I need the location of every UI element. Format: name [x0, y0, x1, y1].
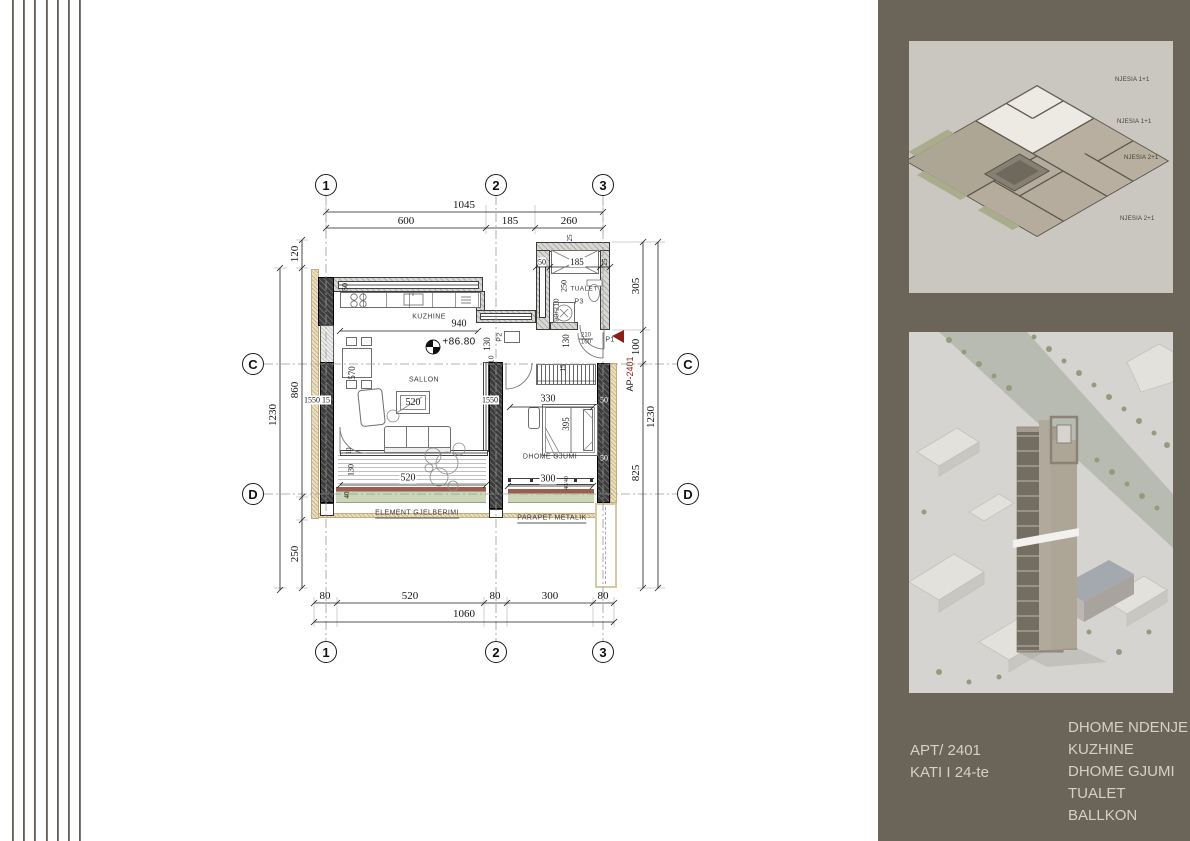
tower-drawing	[909, 332, 1173, 693]
grid-bubble-D-right: D	[677, 483, 699, 505]
apartment-tag-number: 2401	[625, 356, 635, 376]
wall-wc-bottom	[550, 322, 578, 330]
wall-extension-centerline	[605, 507, 606, 584]
door-tag-p3: P3	[574, 299, 583, 306]
insulation-right	[610, 363, 617, 503]
room-list-item: DHOME GJUMI	[1068, 761, 1188, 783]
note-greenery: ELEMENT GJELBERIMI	[375, 510, 459, 519]
note-parapet: PARAPET METALIK	[517, 515, 586, 524]
dim-right-a: 305	[630, 278, 642, 295]
presentation-sheet: 520	[0, 0, 1190, 841]
door-size-p2: 90/210	[489, 355, 496, 379]
window-kitchen	[338, 281, 479, 289]
dim-wc-25a: 25	[601, 259, 609, 266]
dim-wc-185: 185	[569, 257, 585, 267]
dim-top-total: 1045	[453, 199, 475, 211]
dim-bot-e: 80	[598, 590, 609, 602]
wall-left	[320, 362, 334, 503]
room-label-kitchen: KUZHINE	[412, 314, 446, 321]
dim-top-c: 260	[561, 215, 578, 227]
grid-label: 1	[322, 645, 329, 660]
dim-bot-b: 520	[402, 590, 419, 602]
apartment-number: APT/ 2401	[910, 740, 989, 762]
side-panel: NJESIA 1+1 NJESIA 1+1 NJESIA 2+1 NJESIA …	[878, 0, 1190, 841]
dim-dining: 570	[347, 366, 357, 380]
grid-label: 3	[599, 178, 606, 193]
grid-label: 1	[322, 178, 329, 193]
column-top-left	[318, 277, 334, 326]
grid-bubble-1-bottom: 1	[315, 641, 337, 663]
dim-top-b: 185	[502, 215, 519, 227]
room-list-item: DHOME NDENJE	[1068, 717, 1188, 739]
dining-chair	[346, 380, 357, 389]
dim-top-a: 600	[398, 215, 415, 227]
dim-bot-a: 80	[320, 590, 331, 602]
grid-label: D	[248, 487, 257, 502]
dim-right-c: 825	[630, 465, 642, 482]
decor-line	[34, 0, 36, 841]
room-label-living: SALLON	[409, 377, 439, 384]
door-size-p1: 210 100	[579, 333, 593, 346]
wall-left-cap	[320, 503, 334, 516]
door-size-p1-bottom: 100	[579, 340, 593, 346]
dim-kitchen-width: 940	[452, 319, 467, 330]
grid-bubble-D-left: D	[242, 483, 264, 505]
dim-right-b: 100	[630, 339, 642, 356]
apartment-tag: AP-2401	[625, 356, 635, 391]
greenery-strip-right	[508, 493, 594, 503]
dim-bed-width: 330	[541, 394, 556, 405]
room-label-bedroom: DHOME GJUMI	[523, 454, 577, 461]
dim-wall-50b: 50	[600, 454, 608, 463]
dining-chair	[361, 337, 372, 346]
apartment-title-block: APT/ 2401 KATI I 24-te	[910, 740, 989, 784]
grid-label: 3	[599, 645, 606, 660]
door-tag-p2: P2	[497, 332, 504, 341]
room-list-item: BALLKON	[1068, 805, 1188, 827]
dim-wall-50a: 50	[600, 396, 608, 405]
decor-line	[23, 0, 25, 841]
dim-window-mid: 1550	[481, 396, 499, 405]
door-tag-p1: P1	[605, 337, 614, 344]
grid-bubble-2-bottom: 2	[485, 641, 507, 663]
tower-render-image	[909, 332, 1173, 693]
dim-counter: 50	[341, 283, 350, 291]
dim-130a: 130	[482, 337, 492, 351]
grid-label: 2	[492, 178, 499, 193]
grid-label: D	[683, 487, 692, 502]
shaft-wc	[539, 258, 546, 318]
entry-cabinet	[504, 331, 520, 343]
dim-bot-d: 300	[542, 590, 559, 602]
grid-label: 2	[492, 645, 499, 660]
dim-wc-25b: 25	[566, 235, 574, 242]
grid-bubble-3-top: 3	[592, 174, 614, 196]
room-list-item: TUALET	[1068, 783, 1188, 805]
decor-line	[12, 0, 14, 841]
dim-balcony-right: 300	[540, 474, 557, 485]
apartment-tag-prefix: AP-	[625, 377, 635, 392]
dim-10: 10	[345, 448, 353, 455]
grid-bubble-3-bottom: 3	[592, 641, 614, 663]
apartment-floor: KATI I 24-te	[910, 762, 989, 784]
sofa-back	[384, 447, 451, 453]
grid-bubble-C-right: C	[677, 353, 699, 375]
dim-wc-250: 250	[560, 280, 569, 292]
room-label-wc: TUALET	[570, 286, 597, 293]
dim-wc-50: 50	[538, 258, 546, 267]
dim-4040: 40/40	[564, 476, 570, 490]
dim-right-total: 1230	[645, 406, 657, 428]
dim-left-b: 860	[289, 382, 301, 399]
dim-130b: 130	[561, 334, 571, 348]
dim-greenery: 40	[343, 492, 351, 499]
dim-tv: 520	[405, 397, 422, 408]
axon-unit-label: NJESIA 2+1	[1124, 155, 1159, 161]
dim-left-a: 120	[289, 246, 301, 263]
dim-left-c: 250	[289, 546, 301, 563]
wall-left-window-zone	[320, 325, 334, 363]
dim-bot-total: 1060	[453, 608, 475, 620]
dim-bot-c: 80	[490, 590, 501, 602]
grid-bubble-1-top: 1	[315, 174, 337, 196]
decor-line	[68, 0, 70, 841]
dim-wardrobe: 15	[559, 365, 567, 372]
decor-line	[79, 0, 81, 841]
bed-pillow	[583, 409, 593, 451]
wall-middle-cap	[489, 509, 503, 518]
window-step	[480, 313, 532, 320]
kitchen-counter	[340, 292, 481, 308]
wall-middle	[489, 362, 503, 509]
axon-unit-label: NJESIA 2+1	[1120, 216, 1155, 222]
axon-unit-label: NJESIA 1+1	[1117, 119, 1152, 125]
door-size-p1-top: 210	[579, 333, 593, 340]
grid-label: C	[248, 357, 257, 372]
dim-balcony-left: 520	[400, 473, 417, 484]
axon-unit-label: NJESIA 1+1	[1115, 77, 1150, 83]
dim-bed-length: 395	[561, 417, 571, 431]
level-annotation: +86.80	[442, 337, 475, 348]
grid-label: C	[683, 357, 692, 372]
wall-right	[597, 363, 610, 503]
decor-line	[46, 0, 48, 841]
grid-bubble-C-left: C	[242, 353, 264, 375]
greenery-strip-left	[336, 491, 486, 503]
nightstand	[528, 407, 540, 429]
dim-balcony-depth: 130	[347, 464, 356, 476]
decor-line	[57, 0, 59, 841]
room-list: DHOME NDENJE KUZHINE DHOME GJUMI TUALET …	[1068, 717, 1188, 827]
armchair	[357, 388, 386, 427]
dining-chair	[346, 337, 357, 346]
level-symbol	[426, 340, 440, 354]
dim-left-total: 1230	[267, 404, 279, 426]
dining-chair	[361, 380, 372, 389]
room-list-item: KUZHINE	[1068, 739, 1188, 761]
door-size-p3: 90/210	[554, 298, 561, 322]
tv-cabinet: 520	[396, 391, 430, 414]
grid-bubble-2-top: 2	[485, 174, 507, 196]
wall-extension-below	[595, 503, 617, 588]
dim-window-left: 1550 15	[303, 396, 331, 405]
